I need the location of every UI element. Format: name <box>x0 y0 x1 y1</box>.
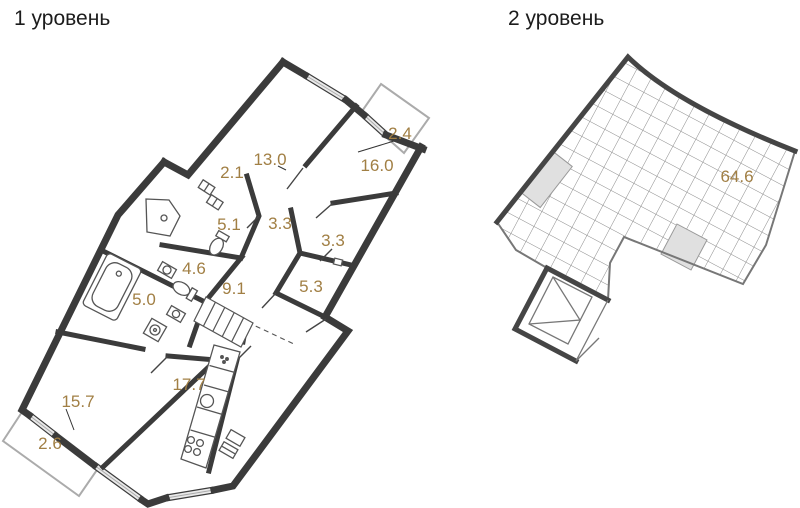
area-living: 15.7 <box>61 392 94 411</box>
level1-title: 1 уровень <box>14 7 110 30</box>
door-square-icon <box>333 258 342 266</box>
stairs <box>194 297 253 347</box>
area-bath-50: 5.0 <box>132 290 156 309</box>
floorplan-canvas: 1 уровень 2 уровень <box>0 0 800 508</box>
shower-icon <box>146 199 180 236</box>
shaft-icon <box>219 430 245 459</box>
area-bath-46: 4.6 <box>182 259 206 278</box>
toilet-icon-2 <box>171 279 198 301</box>
area-balcony-bottom: 2.6 <box>38 434 62 453</box>
sink-icon <box>158 262 177 279</box>
area-hall-right: 3.3 <box>321 231 345 250</box>
area-storage: 5.3 <box>299 277 323 296</box>
area-room-13: 13.0 <box>253 150 286 169</box>
area-room-16: 16.0 <box>360 156 393 175</box>
area-bath-51: 5.1 <box>217 215 241 234</box>
floorplan-svg: 1 уровень 2 уровень <box>0 0 800 508</box>
area-closet: 2.1 <box>220 163 244 182</box>
level1-plan: 2.4 13.0 16.0 2.1 3.3 5.1 3.3 4.6 5.3 9.… <box>3 62 429 504</box>
level2-title: 2 уровень <box>508 7 604 30</box>
area-kitchen: 17.7 <box>172 375 205 394</box>
area-hall-upper: 3.3 <box>268 214 292 233</box>
area-attic: 64.6 <box>720 167 753 186</box>
sink-icon-2 <box>167 306 186 323</box>
level2-plan: 64.6 <box>497 57 795 361</box>
wardrobe-icon <box>194 180 228 210</box>
area-balcony-top: 2.4 <box>388 124 412 143</box>
washer-icon <box>143 318 166 341</box>
area-hall-stairs: 9.1 <box>222 279 246 298</box>
